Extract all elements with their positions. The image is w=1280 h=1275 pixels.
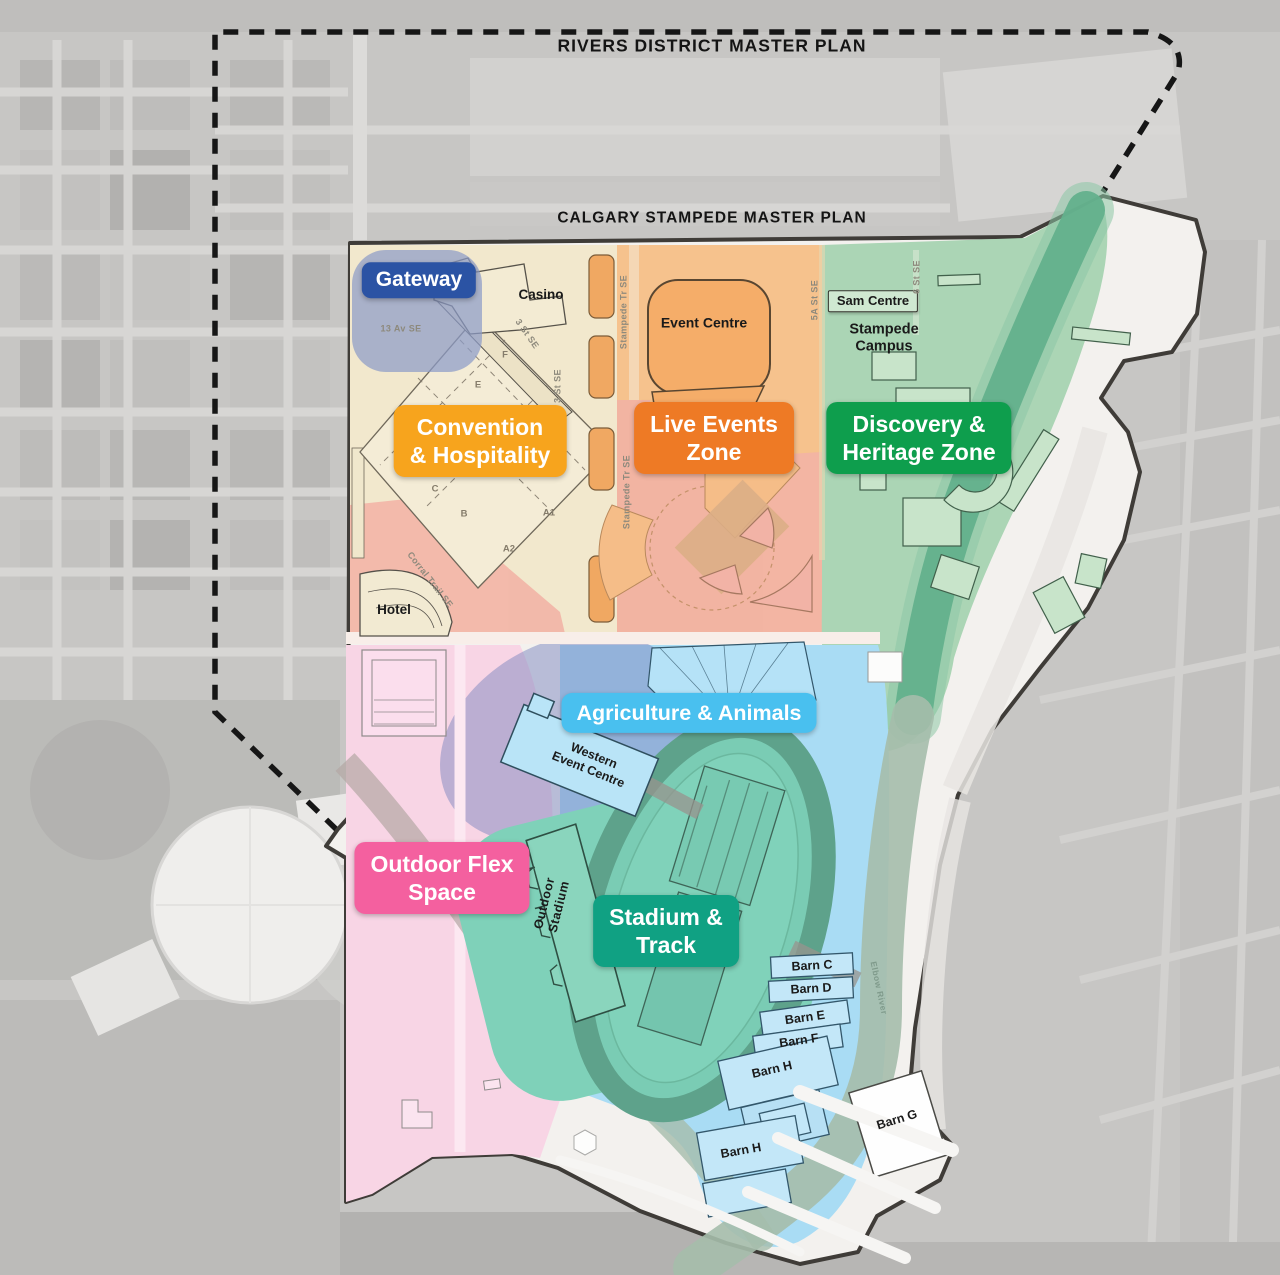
parcel-f: F xyxy=(502,349,508,360)
stampede-campus-label: Stampede Campus xyxy=(849,322,918,357)
rivers-district-title: RIVERS DISTRICT MASTER PLAN xyxy=(558,36,867,57)
street-6-st-se: 6 St SE xyxy=(912,260,923,294)
badge-line: Space xyxy=(370,878,513,906)
street-5a-st-se: 5A St SE xyxy=(810,280,821,320)
sam-centre-label: Sam Centre xyxy=(828,290,918,312)
badge-line: Zone xyxy=(650,438,778,466)
parcel-c: C xyxy=(432,483,439,494)
discovery-heritage-zone-badge: Discovery & Heritage Zone xyxy=(826,402,1011,474)
label-line: Stampede xyxy=(849,322,918,339)
outdoor-flex-space-badge: Outdoor Flex Space xyxy=(354,842,529,914)
calgary-stampede-title: CALGARY STAMPEDE MASTER PLAN xyxy=(557,210,866,229)
street-3-st-se-lower: 3 St SE xyxy=(553,369,564,403)
convention-hospitality-badge: Convention & Hospitality xyxy=(394,405,567,477)
agriculture-animals-badge: Agriculture & Animals xyxy=(562,693,817,733)
map-canvas xyxy=(0,0,1280,1275)
badge-line: Heritage Zone xyxy=(842,438,995,466)
stadium-track-badge: Stadium & Track xyxy=(593,895,739,967)
master-plan-map: RIVERS DISTRICT MASTER PLAN CALGARY STAM… xyxy=(0,0,1280,1275)
casino-label: Casino xyxy=(518,287,563,303)
label-line: Campus xyxy=(849,339,918,356)
badge-line: Outdoor Flex xyxy=(370,850,513,878)
gateway-badge: Gateway xyxy=(362,262,476,298)
badge-line: Stadium & xyxy=(609,903,723,931)
live-events-zone-badge: Live Events Zone xyxy=(634,402,794,474)
event-centre-building xyxy=(648,280,770,394)
parcel-b: B xyxy=(461,508,468,519)
street-stampede-tr-upper: Stampede Tr SE xyxy=(619,275,630,349)
event-centre-label: Event Centre xyxy=(661,315,747,332)
barn-d-label: Barn D xyxy=(790,980,832,997)
badge-line: Track xyxy=(609,931,723,959)
barn-c-label: Barn C xyxy=(791,957,833,974)
badge-line: Discovery & xyxy=(842,410,995,438)
badge-line: & Hospitality xyxy=(410,441,551,469)
badge-line: Live Events xyxy=(650,410,778,438)
parcel-e: E xyxy=(475,379,481,390)
street-13-av-se: 13 Av SE xyxy=(380,324,421,335)
parcel-a2: A2 xyxy=(503,543,515,554)
badge-line: Convention xyxy=(410,413,551,441)
hotel-label: Hotel xyxy=(377,602,411,618)
street-stampede-tr-lower: Stampede Tr SE xyxy=(622,455,633,529)
parcel-a1: A1 xyxy=(543,507,555,518)
